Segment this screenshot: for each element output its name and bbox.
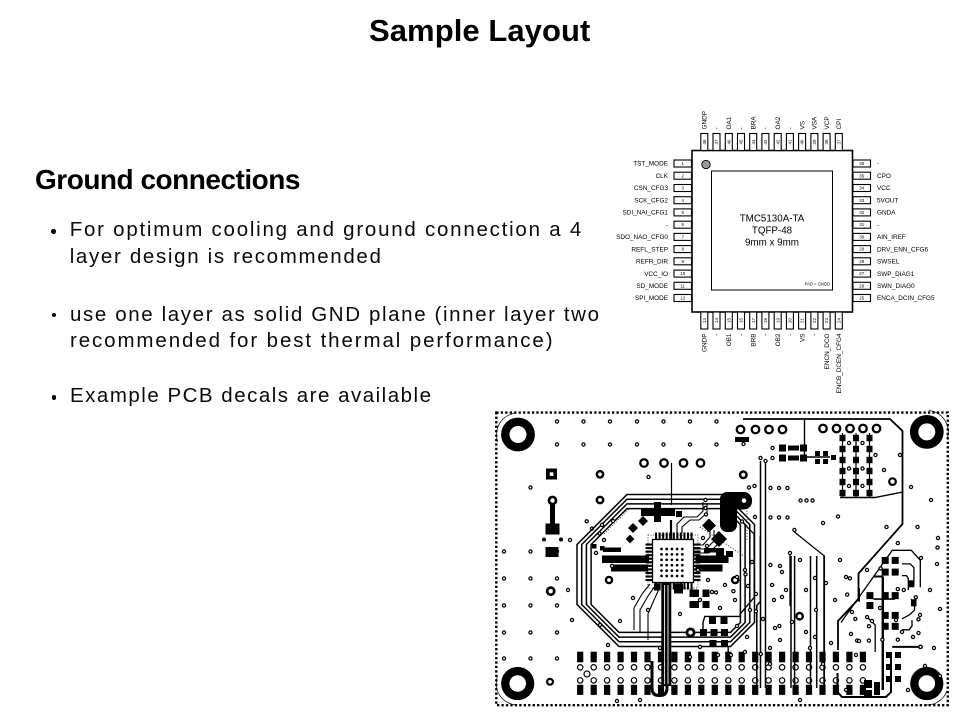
svg-text:BRA: BRA <box>750 116 757 130</box>
svg-text:30: 30 <box>859 235 864 240</box>
svg-text:11: 11 <box>680 283 685 288</box>
svg-text:48: 48 <box>702 139 707 144</box>
svg-text:-: - <box>877 222 879 229</box>
svg-text:38: 38 <box>824 139 829 144</box>
svg-text:10: 10 <box>680 271 685 276</box>
svg-text:SWSEL: SWSEL <box>877 259 900 266</box>
svg-text:TST_MODE: TST_MODE <box>633 161 668 168</box>
svg-text:45: 45 <box>739 139 744 144</box>
svg-text:-: - <box>714 334 721 336</box>
svg-text:CPO: CPO <box>877 173 891 180</box>
svg-text:ENCB_DCEN_CFG4: ENCB_DCEN_CFG4 <box>836 333 843 393</box>
svg-text:-: - <box>877 161 879 168</box>
svg-text:SWN_DIAG0: SWN_DIAG0 <box>877 283 915 290</box>
svg-text:-: - <box>812 334 819 336</box>
svg-text:AIN_IREF: AIN_IREF <box>877 234 906 241</box>
svg-text:-: - <box>714 127 721 129</box>
svg-text:25: 25 <box>859 296 864 301</box>
svg-text:DRV_ENN_CFG6: DRV_ENN_CFG6 <box>877 246 928 253</box>
svg-text:27: 27 <box>859 271 864 276</box>
svg-text:22: 22 <box>812 318 817 323</box>
svg-text:47: 47 <box>714 139 719 144</box>
svg-text:15: 15 <box>726 318 731 323</box>
svg-text:ENCN_DCO: ENCN_DCO <box>824 333 831 369</box>
svg-text:-: - <box>738 127 745 129</box>
svg-text:40: 40 <box>800 139 805 144</box>
svg-text:44: 44 <box>751 139 756 144</box>
svg-text:CSN_CFG3: CSN_CFG3 <box>634 185 669 192</box>
svg-text:OB2: OB2 <box>775 333 782 346</box>
svg-text:16: 16 <box>739 318 744 323</box>
svg-text:32: 32 <box>859 210 864 215</box>
svg-text:GNDA: GNDA <box>877 210 896 217</box>
svg-text:CLK: CLK <box>656 173 669 180</box>
svg-text:29: 29 <box>859 247 864 252</box>
svg-text:42: 42 <box>775 139 780 144</box>
svg-text:-: - <box>787 127 794 129</box>
svg-text:35: 35 <box>859 173 864 178</box>
svg-text:39: 39 <box>812 139 817 144</box>
svg-text:PAD = GNDD: PAD = GNDD <box>805 282 830 287</box>
svg-text:GNDP: GNDP <box>702 334 709 352</box>
svg-text:-: - <box>738 334 745 336</box>
svg-text:REFR_DIR: REFR_DIR <box>636 259 668 266</box>
svg-text:24: 24 <box>836 318 841 323</box>
svg-text:13: 13 <box>702 318 707 323</box>
svg-text:21: 21 <box>800 318 805 323</box>
svg-text:9mm x 9mm: 9mm x 9mm <box>745 238 799 249</box>
svg-text:OA1: OA1 <box>726 116 733 129</box>
svg-text:CPI: CPI <box>836 119 843 130</box>
svg-text:-: - <box>763 127 770 129</box>
svg-text:BRB: BRB <box>750 334 757 347</box>
svg-text:TMC5130A-TA: TMC5130A-TA <box>740 214 805 225</box>
svg-text:SPI_MODE: SPI_MODE <box>635 295 668 302</box>
svg-text:ENCA_DCIN_CFG5: ENCA_DCIN_CFG5 <box>877 295 935 302</box>
svg-text:46: 46 <box>726 139 731 144</box>
svg-text:-: - <box>763 334 770 336</box>
svg-text:REFL_STEP: REFL_STEP <box>631 246 668 253</box>
svg-text:OA2: OA2 <box>775 116 782 129</box>
svg-text:SWP_DIAG1: SWP_DIAG1 <box>877 271 915 278</box>
svg-text:23: 23 <box>824 318 829 323</box>
svg-text:VSA: VSA <box>812 116 819 130</box>
svg-text:41: 41 <box>788 139 793 144</box>
svg-text:VS: VS <box>799 121 806 130</box>
svg-text:43: 43 <box>763 139 768 144</box>
svg-text:VCP: VCP <box>824 116 831 129</box>
svg-text:SDO_NAO_CFG0: SDO_NAO_CFG0 <box>616 234 668 241</box>
svg-text:SDI_NAI_CFG1: SDI_NAI_CFG1 <box>623 210 669 217</box>
svg-text:37: 37 <box>836 139 841 144</box>
svg-text:19: 19 <box>775 318 780 323</box>
svg-text:SD_MODE: SD_MODE <box>636 283 668 290</box>
svg-text:OB1: OB1 <box>726 333 733 346</box>
svg-text:-: - <box>787 334 794 336</box>
svg-text:14: 14 <box>714 318 719 323</box>
svg-text:VCC_IO: VCC_IO <box>644 271 668 278</box>
svg-text:33: 33 <box>859 198 864 203</box>
svg-text:-: - <box>666 222 668 229</box>
svg-text:26: 26 <box>859 283 864 288</box>
svg-text:31: 31 <box>859 222 864 227</box>
svg-text:GNDP: GNDP <box>702 111 709 129</box>
svg-text:SCK_CFG2: SCK_CFG2 <box>634 197 668 204</box>
svg-text:VCC: VCC <box>877 185 891 192</box>
svg-text:34: 34 <box>859 186 864 191</box>
svg-text:VS: VS <box>799 334 806 343</box>
svg-text:28: 28 <box>859 259 864 264</box>
svg-text:TQFP-48: TQFP-48 <box>752 225 793 236</box>
svg-text:5VOUT: 5VOUT <box>877 197 898 204</box>
svg-text:12: 12 <box>680 296 685 301</box>
svg-text:36: 36 <box>859 161 864 166</box>
svg-text:20: 20 <box>788 318 793 323</box>
svg-text:17: 17 <box>751 318 756 323</box>
svg-text:18: 18 <box>763 318 768 323</box>
